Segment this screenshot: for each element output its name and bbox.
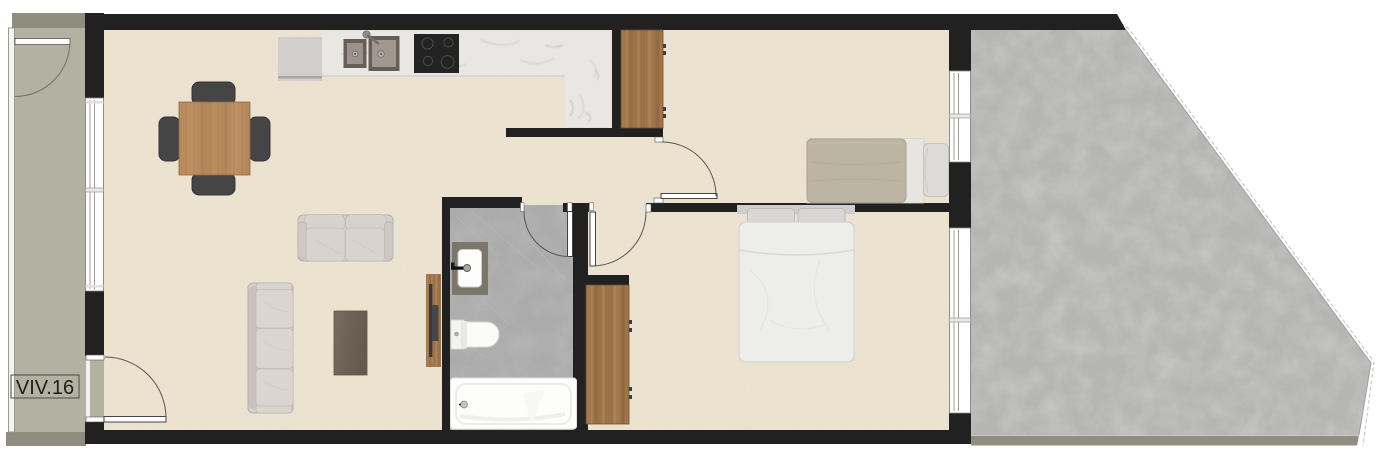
svg-text:VIV.16: VIV.16 [16,377,74,399]
